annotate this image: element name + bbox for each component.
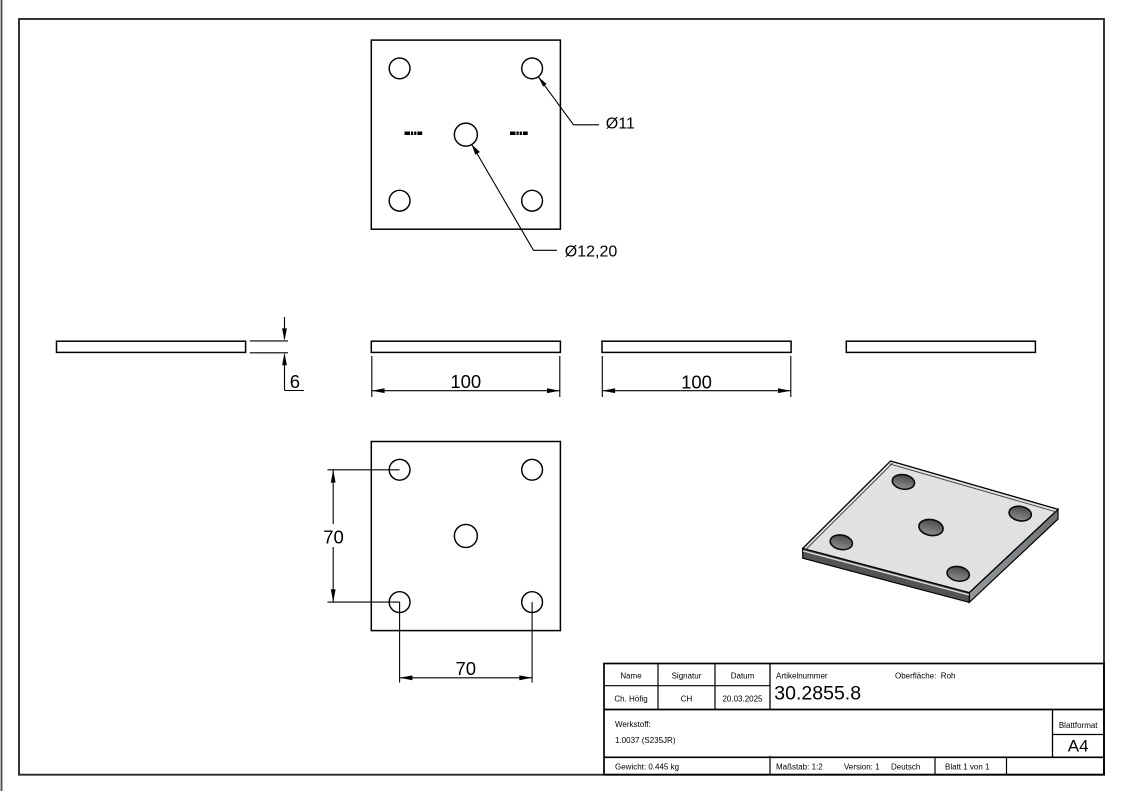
svg-text:Datum: Datum: [731, 672, 755, 681]
svg-text:Ø12,20: Ø12,20: [565, 244, 618, 261]
svg-text:70: 70: [456, 658, 477, 679]
svg-text:Ch. Höfig: Ch. Höfig: [614, 695, 647, 704]
svg-text:A4: A4: [1068, 737, 1089, 756]
svg-text:30.2855.8: 30.2855.8: [774, 683, 861, 705]
svg-text:Name: Name: [620, 672, 642, 681]
svg-text:Oberfläche: Roh: Oberfläche: Roh: [895, 672, 955, 681]
svg-text:6: 6: [290, 371, 300, 392]
svg-text:Gewicht: 0.445 kg: Gewicht: 0.445 kg: [615, 763, 679, 772]
svg-text:20.03.2025: 20.03.2025: [722, 695, 763, 704]
svg-text:Ø11: Ø11: [606, 115, 635, 132]
svg-text:100: 100: [450, 371, 481, 392]
svg-text:Version: 1: Version: 1: [844, 763, 880, 772]
svg-text:Maßstab: 1:2: Maßstab: 1:2: [776, 763, 823, 772]
svg-text:70: 70: [323, 526, 344, 547]
svg-text:Blatt 1 von 1: Blatt 1 von 1: [945, 763, 990, 772]
svg-text:Blattformat: Blattformat: [1059, 721, 1098, 730]
svg-text:Artikelnummer: Artikelnummer: [776, 672, 828, 681]
svg-text:100: 100: [681, 371, 712, 392]
svg-text:Signatur: Signatur: [672, 672, 702, 681]
svg-text:CH: CH: [681, 695, 693, 704]
svg-text:Werkstoff:: Werkstoff:: [615, 720, 651, 729]
svg-text:Deutsch: Deutsch: [891, 763, 920, 772]
svg-text:1.0037 (S235JR): 1.0037 (S235JR): [615, 736, 676, 745]
